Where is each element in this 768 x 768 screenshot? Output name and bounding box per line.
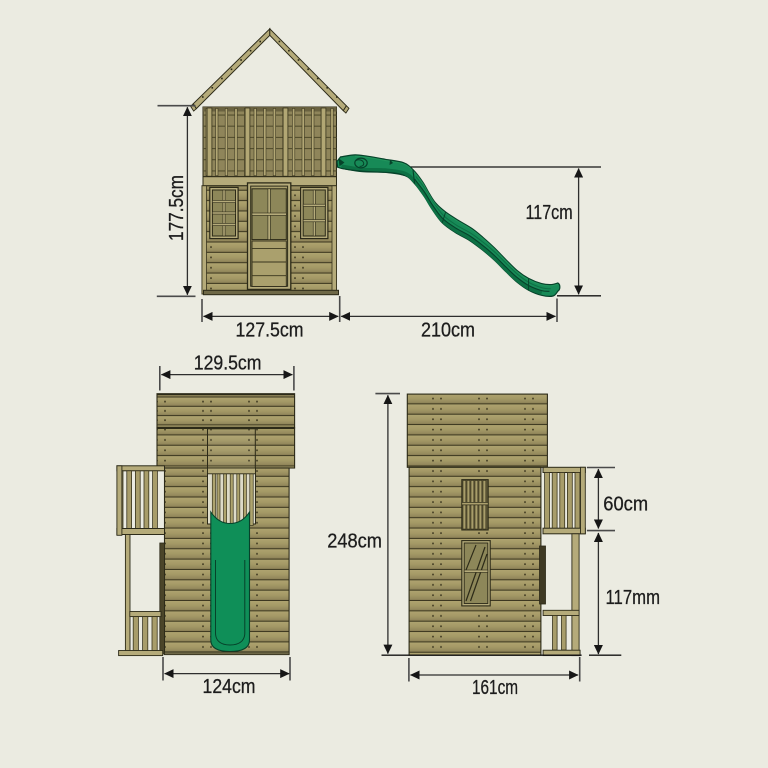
- svg-text:124cm: 124cm: [203, 675, 256, 698]
- svg-text:117cm: 117cm: [526, 201, 573, 224]
- svg-text:210cm: 210cm: [421, 319, 475, 342]
- svg-text:117mm: 117mm: [606, 586, 661, 609]
- svg-text:177.5cm: 177.5cm: [165, 175, 188, 241]
- svg-text:60cm: 60cm: [603, 493, 648, 516]
- svg-text:248cm: 248cm: [327, 530, 382, 553]
- svg-text:161cm: 161cm: [472, 676, 518, 699]
- svg-text:127.5cm: 127.5cm: [236, 319, 304, 342]
- svg-text:129.5cm: 129.5cm: [194, 352, 262, 375]
